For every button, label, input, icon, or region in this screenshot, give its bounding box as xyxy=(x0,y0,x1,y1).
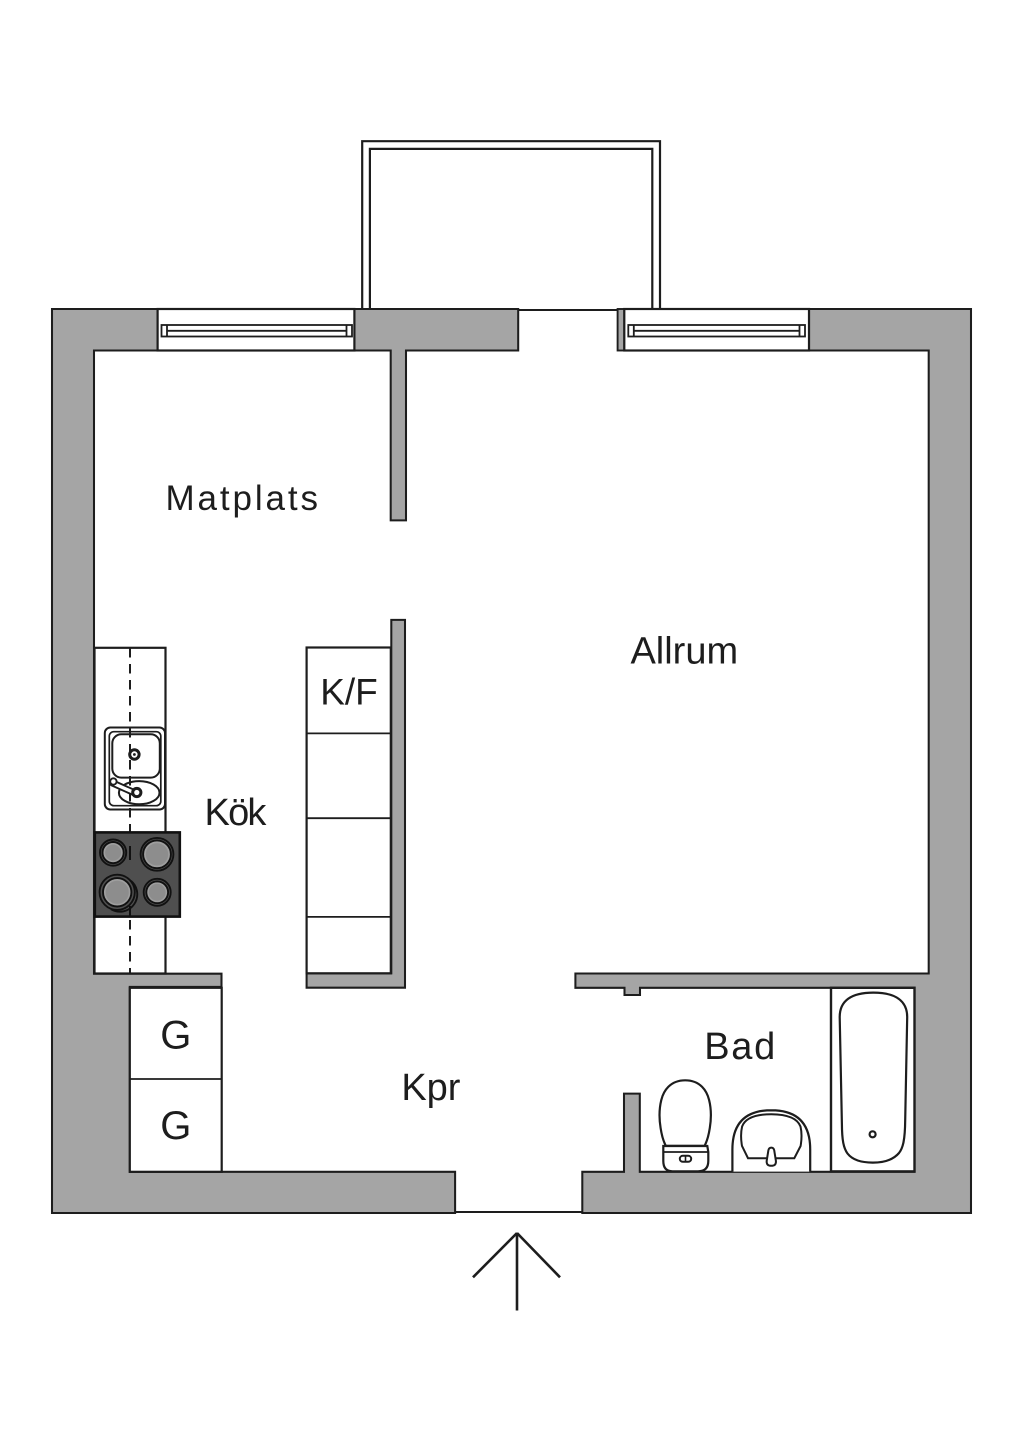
svg-text:Matplats: Matplats xyxy=(165,479,320,518)
svg-text:Allrum: Allrum xyxy=(630,631,738,673)
svg-text:Kpr: Kpr xyxy=(401,1067,460,1109)
svg-text:G: G xyxy=(160,1104,191,1148)
svg-text:K/F: K/F xyxy=(320,671,378,712)
svg-text:Kök: Kök xyxy=(205,792,268,834)
svg-text:G: G xyxy=(160,1014,191,1058)
svg-text:Bad: Bad xyxy=(704,1026,777,1068)
